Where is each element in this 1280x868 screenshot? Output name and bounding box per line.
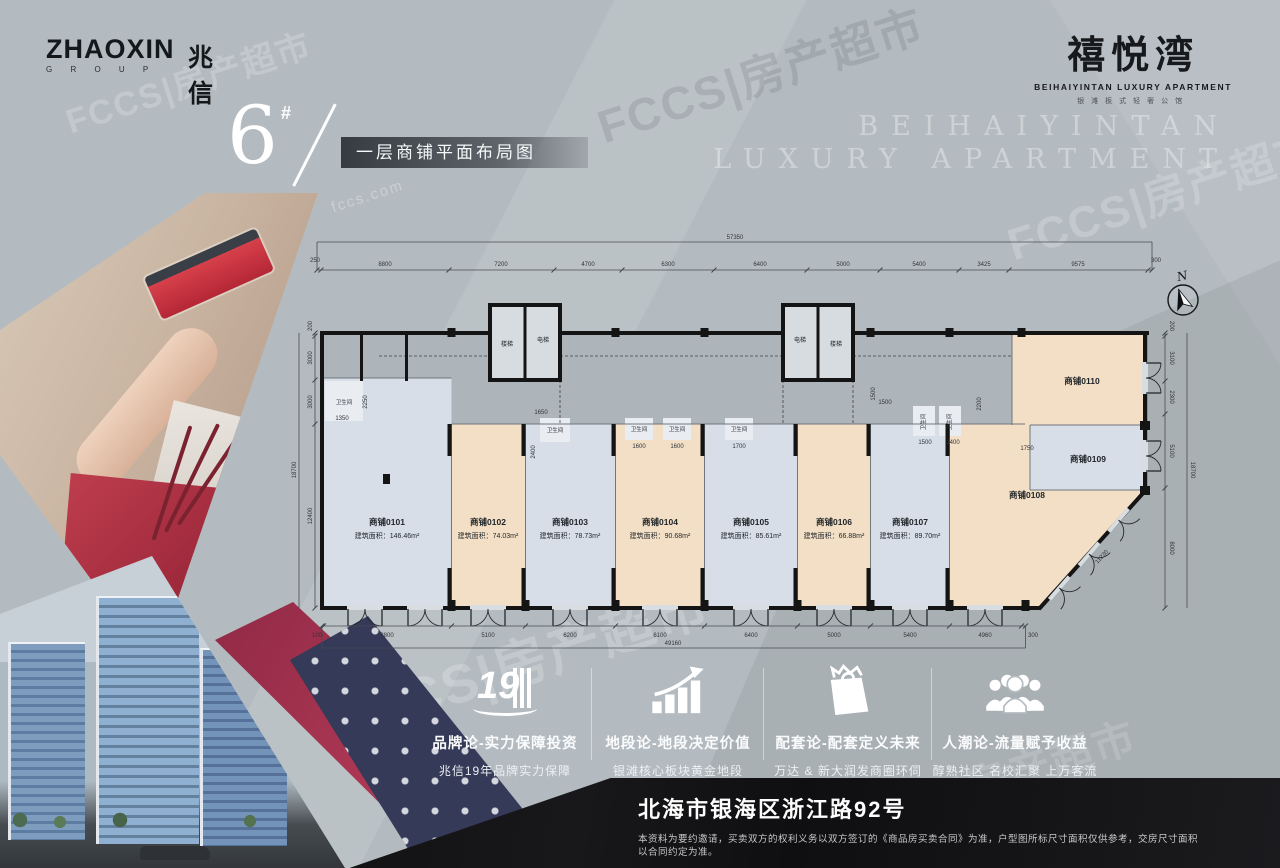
tower-building	[96, 596, 199, 844]
svg-text:1500: 1500	[918, 440, 932, 446]
disclaimer-text: 本资料为要约邀请，买卖双方的权利义务以双方签订的《商品房买卖合同》为准，户型图所…	[638, 833, 1198, 859]
floor-plan: 楼梯 电梯 电梯 楼梯 57350 250 8800 7200	[285, 228, 1225, 673]
svg-text:18700: 18700	[1189, 462, 1195, 479]
svg-text:建筑面积：78.73m²: 建筑面积：78.73m²	[540, 531, 601, 540]
svg-text:8800: 8800	[378, 262, 392, 268]
svg-text:5400: 5400	[903, 633, 917, 639]
svg-text:4960: 4960	[978, 633, 992, 639]
svg-text:商铺0109: 商铺0109	[1070, 454, 1106, 464]
svg-text:卫生间: 卫生间	[919, 414, 927, 431]
developer-logo-text: ZHAOXIN	[46, 36, 175, 63]
svg-text:8000: 8000	[1168, 541, 1174, 555]
svg-text:6100: 6100	[653, 633, 667, 639]
building-number-hash: #	[281, 103, 291, 124]
svg-text:N: N	[1175, 268, 1190, 284]
svg-text:卫生间: 卫生间	[631, 425, 648, 433]
svg-text:商铺0105: 商铺0105	[733, 517, 769, 527]
svg-text:商铺0101: 商铺0101	[369, 517, 405, 527]
svg-text:2250: 2250	[363, 395, 369, 409]
svg-text:卫生间: 卫生间	[945, 414, 953, 431]
svg-text:1750: 1750	[1020, 446, 1034, 452]
svg-text:3000: 3000	[308, 351, 314, 365]
crowd-icon	[984, 670, 1046, 716]
svg-text:建筑面积：74.03m²: 建筑面积：74.03m²	[458, 531, 519, 540]
svg-text:建筑面积：85.61m²: 建筑面积：85.61m²	[721, 531, 782, 540]
svg-text:5100: 5100	[481, 633, 495, 639]
svg-text:3000: 3000	[308, 395, 314, 409]
svg-text:250: 250	[310, 258, 321, 264]
stair-elevator-core: 电梯 楼梯	[783, 305, 853, 380]
building-number: 6	[227, 96, 278, 176]
svg-text:商铺0102: 商铺0102	[470, 517, 506, 527]
svg-text:电梯: 电梯	[537, 336, 549, 344]
building-19-icon: 19	[473, 664, 537, 716]
credit-card	[144, 228, 274, 320]
project-address: 北海市银海区浙江路92号	[638, 792, 906, 824]
dimension-chain-top: 57350 250 8800 7200 4700 6300 6400 5000 …	[310, 235, 1162, 273]
svg-text:5000: 5000	[827, 633, 841, 639]
svg-text:3425: 3425	[977, 262, 991, 268]
svg-text:建筑面积：90.68m²: 建筑面积：90.68m²	[630, 531, 691, 540]
background-watermark-line2: LUXURY APARTMENT	[713, 143, 1230, 176]
svg-text:商铺0104: 商铺0104	[642, 517, 678, 527]
feature-crowd: 人潮论-流量赋予收益 醇熟社区 名校汇聚 上万客流	[905, 660, 1125, 779]
project-name-cn: 禧悦湾	[1034, 24, 1232, 79]
svg-text:8800: 8800	[380, 633, 394, 639]
project-tagline: 银滩板式轻奢公馆	[1034, 96, 1232, 106]
svg-text:1600: 1600	[670, 444, 684, 450]
svg-text:卫生间: 卫生间	[731, 425, 748, 433]
page-title-bar: 一层商铺平面布局图	[341, 137, 588, 168]
svg-text:300: 300	[1151, 258, 1162, 264]
dimension-chain-right: 18700 200 3100 2300 5100 8000	[1163, 321, 1196, 611]
svg-text:100: 100	[312, 633, 323, 639]
svg-text:商铺0107: 商铺0107	[892, 517, 928, 527]
street-trees	[0, 808, 345, 834]
svg-text:5000: 5000	[836, 262, 850, 268]
project-name-en: BEIHAIYINTAN LUXURY APARTMENT	[1034, 82, 1232, 92]
dim-label-diagonal: 11230	[1095, 549, 1111, 566]
feature-subtitle: 醇熟社区 名校汇聚 上万客流	[905, 762, 1125, 779]
svg-text:楼梯: 楼梯	[501, 340, 513, 348]
shopping-bag-icon	[823, 664, 873, 716]
building-arc	[473, 701, 537, 716]
north-compass-icon: N	[1168, 268, 1198, 315]
svg-text:电梯: 电梯	[794, 336, 806, 344]
svg-text:49160: 49160	[665, 641, 682, 647]
svg-text:6300: 6300	[661, 262, 675, 268]
svg-text:6400: 6400	[753, 262, 767, 268]
svg-text:2300: 2300	[1168, 390, 1174, 404]
project-logo: 禧悦湾 BEIHAIYINTAN LUXURY APARTMENT 银滩板式轻奢…	[1034, 24, 1232, 106]
svg-text:5100: 5100	[1168, 444, 1174, 458]
svg-text:3100: 3100	[1168, 351, 1174, 365]
svg-text:1350: 1350	[335, 416, 349, 422]
svg-text:5400: 5400	[912, 262, 926, 268]
svg-text:12400: 12400	[308, 507, 314, 524]
developer-logo: ZHAOXIN G R O U P 兆信	[46, 36, 175, 74]
svg-text:6200: 6200	[563, 633, 577, 639]
svg-text:商铺0106: 商铺0106	[816, 517, 852, 527]
street-car	[140, 846, 210, 860]
dimension-chain-left: 18700 200 3000 3000 12400	[292, 320, 318, 610]
svg-text:200: 200	[308, 320, 314, 331]
svg-text:商铺0110: 商铺0110	[1064, 376, 1100, 386]
svg-text:商铺0108: 商铺0108	[1009, 490, 1045, 500]
svg-text:卫生间: 卫生间	[547, 426, 564, 434]
svg-text:300: 300	[1028, 633, 1039, 639]
svg-text:卫生间: 卫生间	[669, 425, 686, 433]
developer-logo-cn: 兆信	[188, 38, 216, 110]
svg-text:1600: 1600	[632, 444, 646, 450]
svg-text:18700: 18700	[292, 461, 298, 478]
svg-text:4700: 4700	[581, 262, 595, 268]
page-title: 一层商铺平面布局图	[341, 137, 588, 168]
svg-text:建筑面积：146.46m²: 建筑面积：146.46m²	[355, 531, 420, 540]
svg-text:卫生间: 卫生间	[336, 398, 353, 406]
svg-text:楼梯: 楼梯	[830, 340, 842, 348]
developer-logo-group: G R O U P	[46, 65, 175, 74]
svg-text:1400: 1400	[946, 440, 960, 446]
svg-text:200: 200	[1168, 321, 1174, 332]
site-watermark: fccs.com	[329, 177, 406, 216]
svg-text:1700: 1700	[732, 444, 746, 450]
svg-text:1500: 1500	[871, 387, 877, 401]
background-watermark-text: BEIHAIYINTAN LUXURY APARTMENT	[713, 110, 1230, 176]
slash-divider	[292, 103, 336, 186]
svg-text:57350: 57350	[727, 235, 744, 241]
background-watermark-line1: BEIHAIYINTAN	[713, 110, 1230, 143]
floor-plan-svg: 楼梯 电梯 电梯 楼梯 57350 250 8800 7200	[285, 228, 1225, 673]
svg-text:2200: 2200	[977, 397, 983, 411]
svg-text:7200: 7200	[494, 262, 508, 268]
svg-text:建筑面积：66.88m²: 建筑面积：66.88m²	[804, 531, 865, 540]
svg-text:9575: 9575	[1071, 262, 1085, 268]
feature-title: 人潮论-流量赋予收益	[905, 732, 1125, 753]
svg-text:商铺0103: 商铺0103	[552, 517, 588, 527]
dimension-chain-bottom: 49160 100 8800 5100 6200 6100 6400 5000 …	[312, 624, 1039, 649]
svg-text:2400: 2400	[531, 445, 537, 459]
svg-text:建筑面积：89.70m²: 建筑面积：89.70m²	[880, 531, 941, 540]
svg-text:1500: 1500	[878, 400, 892, 406]
stair-elevator-core: 楼梯 电梯	[490, 305, 560, 380]
svg-text:6400: 6400	[744, 633, 758, 639]
svg-text:1650: 1650	[534, 410, 548, 416]
growth-chart-icon	[650, 666, 706, 716]
